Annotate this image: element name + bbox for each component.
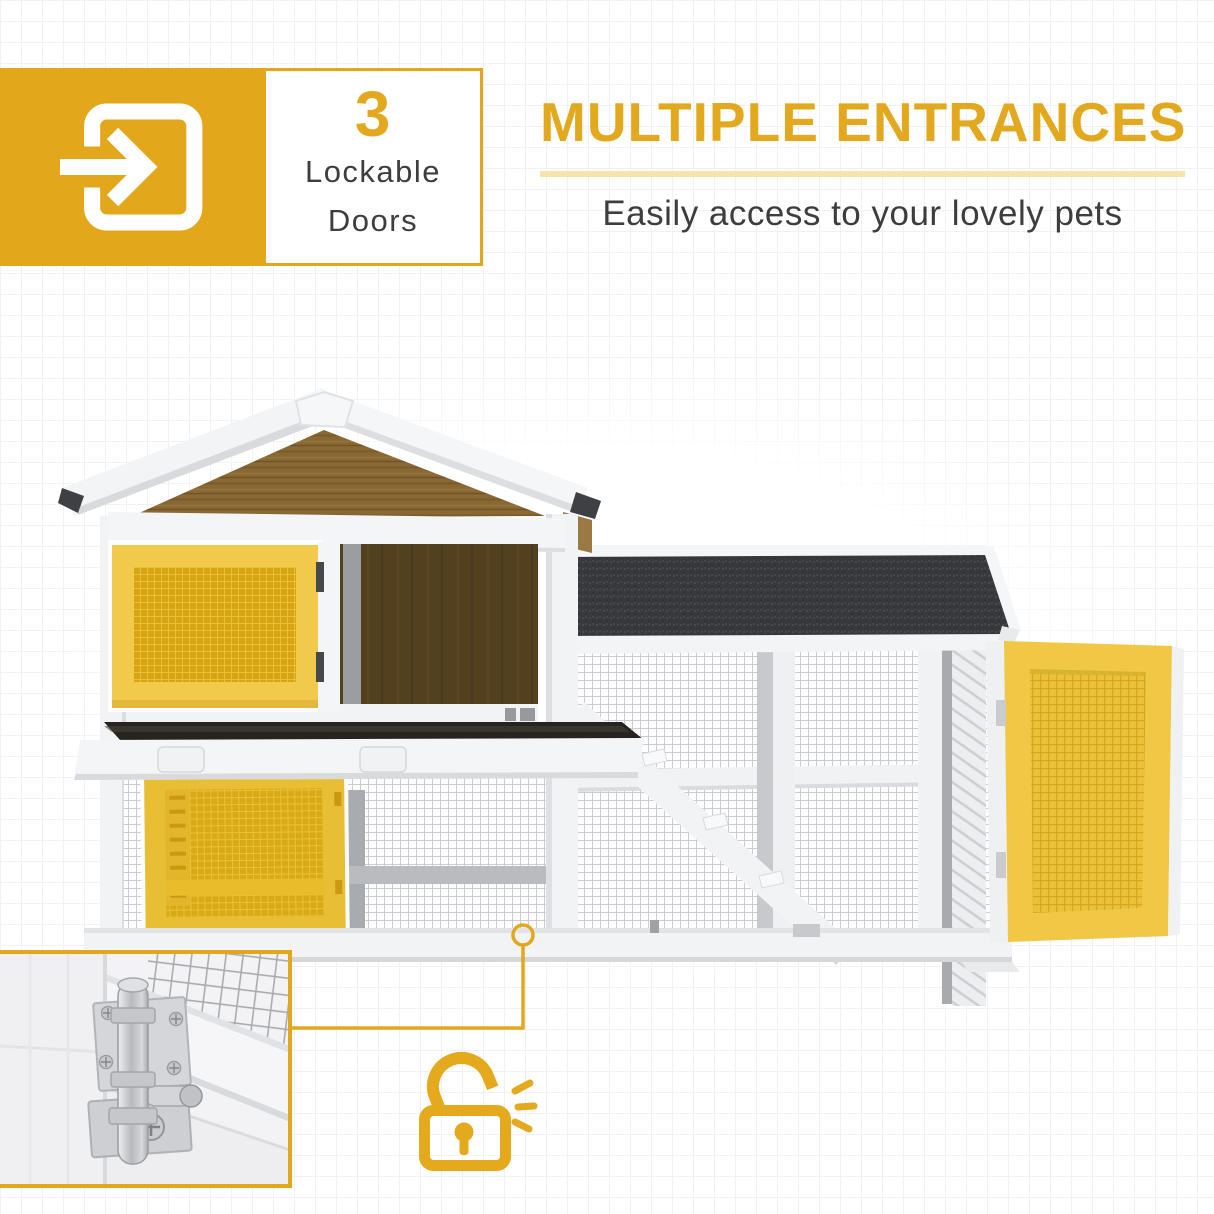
door-hinge <box>996 852 1006 878</box>
door-hinge <box>996 700 1006 726</box>
run-door-post <box>918 644 942 934</box>
upper-latch <box>505 708 516 721</box>
rail-latch <box>650 920 659 933</box>
door-count: 3 <box>266 81 480 147</box>
rail-latch-2 <box>793 924 820 937</box>
rail-foot <box>962 962 1020 972</box>
badge-label-line1: Lockable <box>266 147 480 196</box>
lower-open-mesh <box>346 772 546 928</box>
upper-mesh-door <box>108 540 340 712</box>
lock-closeup-inset <box>0 950 290 1188</box>
title-divider <box>540 171 1185 177</box>
door-enter-icon <box>58 94 208 240</box>
upper-latch-2 <box>520 708 535 721</box>
tray-handle <box>360 747 406 772</box>
page-subtitle: Easily access to your lovely pets <box>540 194 1185 234</box>
back-post <box>347 790 365 928</box>
open-run-door <box>986 641 1184 943</box>
barrel-bolt-lock <box>88 978 202 1164</box>
feature-badge-icon-box <box>0 68 265 266</box>
pullout-tray <box>74 722 644 780</box>
padlock-shackle <box>424 1049 494 1112</box>
back-rail <box>347 866 560 884</box>
hinge-icon <box>316 562 324 592</box>
tray-handle <box>158 747 204 772</box>
run-roof <box>554 545 1021 644</box>
feature-badge: 3 Lockable Doors <box>263 68 483 266</box>
badge-label-line2: Doors <box>266 196 480 245</box>
padlock-unlocked-icon <box>424 1049 534 1165</box>
interior-divider <box>343 544 361 718</box>
page-title: MULTIPLE ENTRANCES <box>540 90 1200 154</box>
inset-door-post <box>0 950 106 1188</box>
roof-ridge-cap <box>296 392 353 427</box>
marketing-page: { "colors": { "accent": "#e2a71b", "head… <box>0 0 1214 1214</box>
hinge-icon <box>316 652 324 682</box>
click-emphasis-lines <box>515 1083 534 1129</box>
lower-mesh-door <box>140 762 350 944</box>
